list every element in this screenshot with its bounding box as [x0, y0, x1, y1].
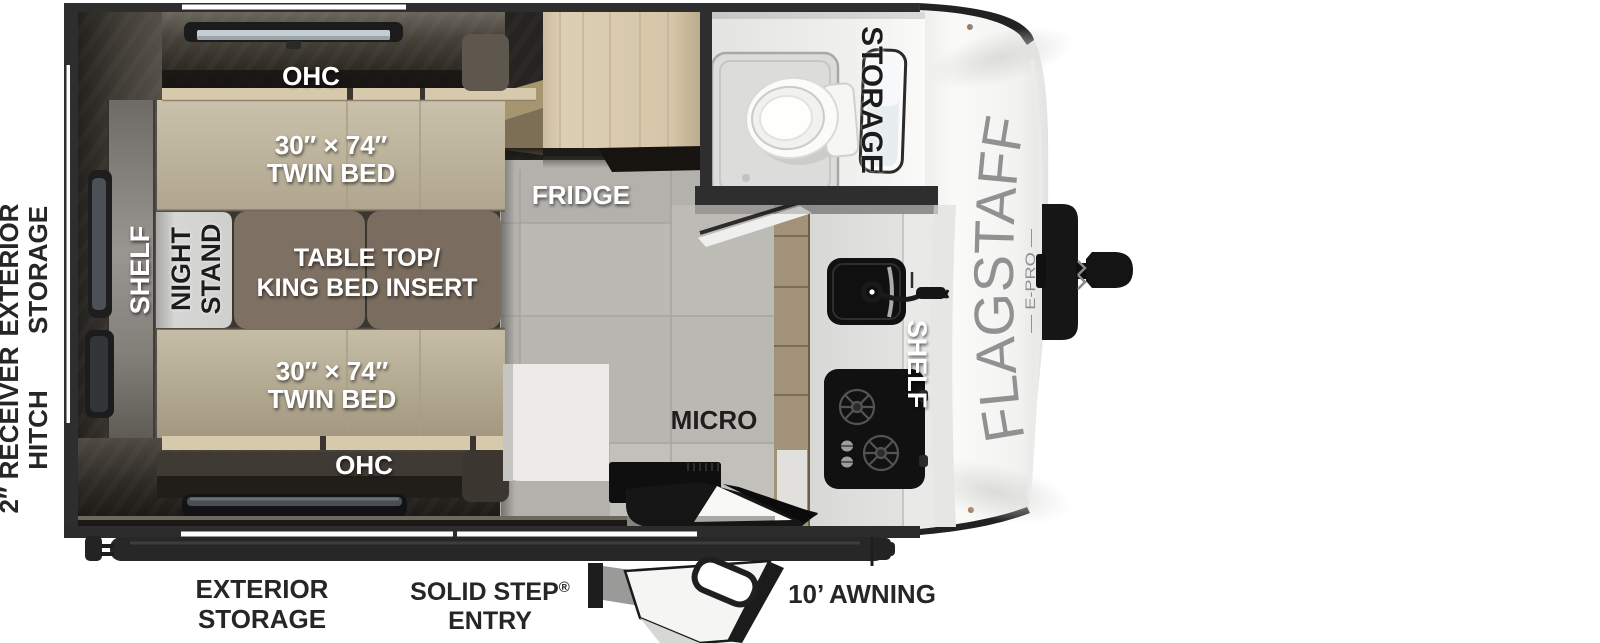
svg-text:30″ × 74″: 30″ × 74″	[276, 356, 388, 386]
svg-text:HITCH: HITCH	[23, 390, 53, 469]
svg-text:TWIN BED: TWIN BED	[268, 384, 397, 414]
svg-text:FRIDGE: FRIDGE	[532, 180, 630, 210]
svg-text:30″ × 74″: 30″ × 74″	[275, 130, 387, 160]
svg-text:SHELF: SHELF	[902, 320, 932, 409]
svg-text:MICRO: MICRO	[671, 405, 758, 435]
svg-text:STORAGE: STORAGE	[23, 206, 53, 334]
svg-text:STORAGE: STORAGE	[855, 26, 888, 174]
svg-text:TABLE TOP/: TABLE TOP/	[294, 244, 440, 272]
svg-text:NIGHT: NIGHT	[166, 227, 196, 312]
svg-text:10’ AWNING: 10’ AWNING	[788, 579, 936, 609]
svg-text:— E-PRO —: — E-PRO —	[1022, 229, 1038, 333]
svg-text:2″ RECEIVER: 2″ RECEIVER	[0, 346, 24, 513]
svg-text:SOLID STEP®: SOLID STEP®	[410, 578, 570, 606]
svg-text:KING BED INSERT: KING BED INSERT	[257, 274, 478, 302]
svg-text:SHELF: SHELF	[125, 226, 155, 315]
svg-text:STAND: STAND	[196, 224, 226, 315]
svg-text:EXTERIOR: EXTERIOR	[196, 574, 329, 604]
svg-text:STORAGE: STORAGE	[198, 604, 326, 634]
svg-text:TWIN BED: TWIN BED	[267, 158, 396, 188]
svg-text:OHC: OHC	[282, 61, 340, 91]
svg-text:EXTERIOR: EXTERIOR	[0, 203, 24, 336]
svg-text:ENTRY: ENTRY	[448, 607, 532, 635]
svg-text:OHC: OHC	[335, 450, 393, 480]
